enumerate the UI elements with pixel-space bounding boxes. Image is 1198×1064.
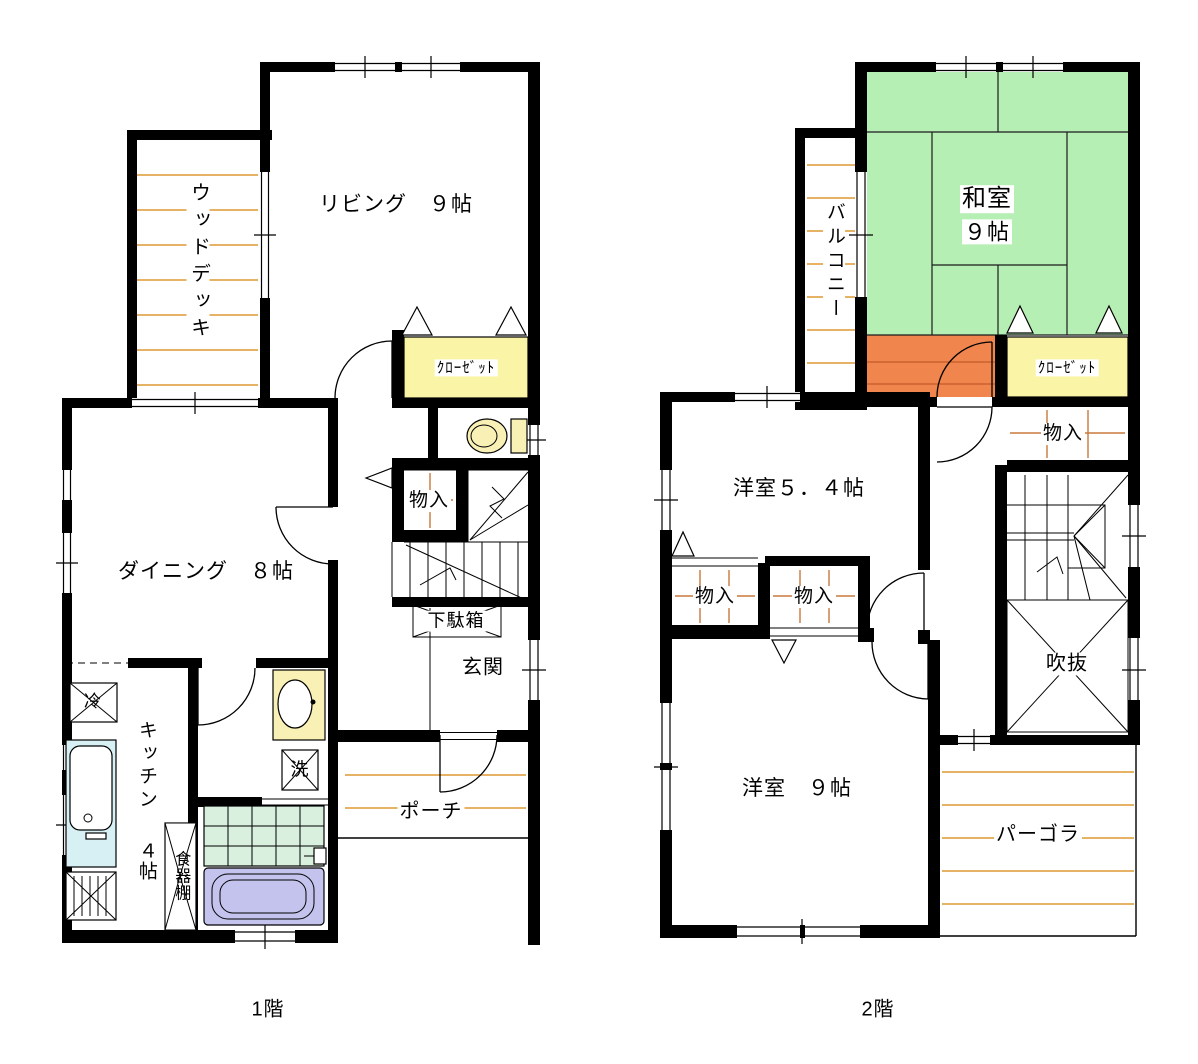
label-western-room-9: 洋室 ９帖 <box>740 777 854 801</box>
label-storage-2f-right: 物入 <box>1041 423 1085 445</box>
label-kitchen: キッチン <box>135 718 157 814</box>
label-storage-2f-mid: 物入 <box>792 586 836 608</box>
toilet-icon <box>467 419 527 453</box>
floorplan-canvas <box>0 0 1198 1064</box>
storage-fold-icon <box>672 532 694 556</box>
caption-floor2: 2階 <box>859 999 896 1022</box>
bathroom <box>204 799 338 925</box>
label-living: リビング ９帖 <box>317 193 475 217</box>
label-pergola: パーゴラ <box>994 824 1082 847</box>
label-storage-2f-left: 物入 <box>693 586 737 608</box>
floor1-plan <box>56 56 546 949</box>
stove-icon <box>66 872 116 920</box>
label-closet-1f: ｸﾛｰｾﾞｯﾄ <box>435 359 498 376</box>
label-entrance: 玄関 <box>460 657 506 680</box>
label-fridge: 冷 <box>82 692 104 712</box>
label-void: 吹抜 <box>1044 653 1090 676</box>
label-wood-deck: ウッドデッキ <box>187 180 210 346</box>
label-balcony: バルコニー <box>823 200 845 324</box>
label-shoe-cabinet: 下駄箱 <box>426 611 487 632</box>
label-western-room-54: 洋室５．４帖 <box>731 477 867 501</box>
label-laundry: 洗 <box>289 760 312 781</box>
closet-fold-icon <box>402 307 432 335</box>
basin-icon <box>273 670 325 740</box>
storage-fold-icon <box>366 468 392 488</box>
label-porch: ポーチ <box>398 801 465 824</box>
label-japanese-room-size: ９帖 <box>962 219 1012 244</box>
label-storage-1f: 物入 <box>407 490 451 512</box>
label-cupboard: 食器棚 <box>171 849 189 904</box>
closet-fold-icon <box>496 307 526 335</box>
floorplan-page: リビング ９帖 ウッドデッキ ｸﾛｰｾﾞｯﾄ 物入 下駄箱 玄関 ダイニング ８… <box>0 0 1198 1064</box>
kitchen-sink-icon <box>66 740 116 867</box>
caption-floor1: 1階 <box>249 999 286 1022</box>
storage-fold-icon <box>772 640 796 663</box>
label-kitchen-size: ４帖 <box>135 839 157 883</box>
label-dining: ダイニング ８帖 <box>116 560 296 584</box>
label-closet-2f: ｸﾛｰｾﾞｯﾄ <box>1036 359 1099 376</box>
stairs-2f <box>1005 475 1128 600</box>
label-japanese-room: 和室 <box>960 185 1014 213</box>
